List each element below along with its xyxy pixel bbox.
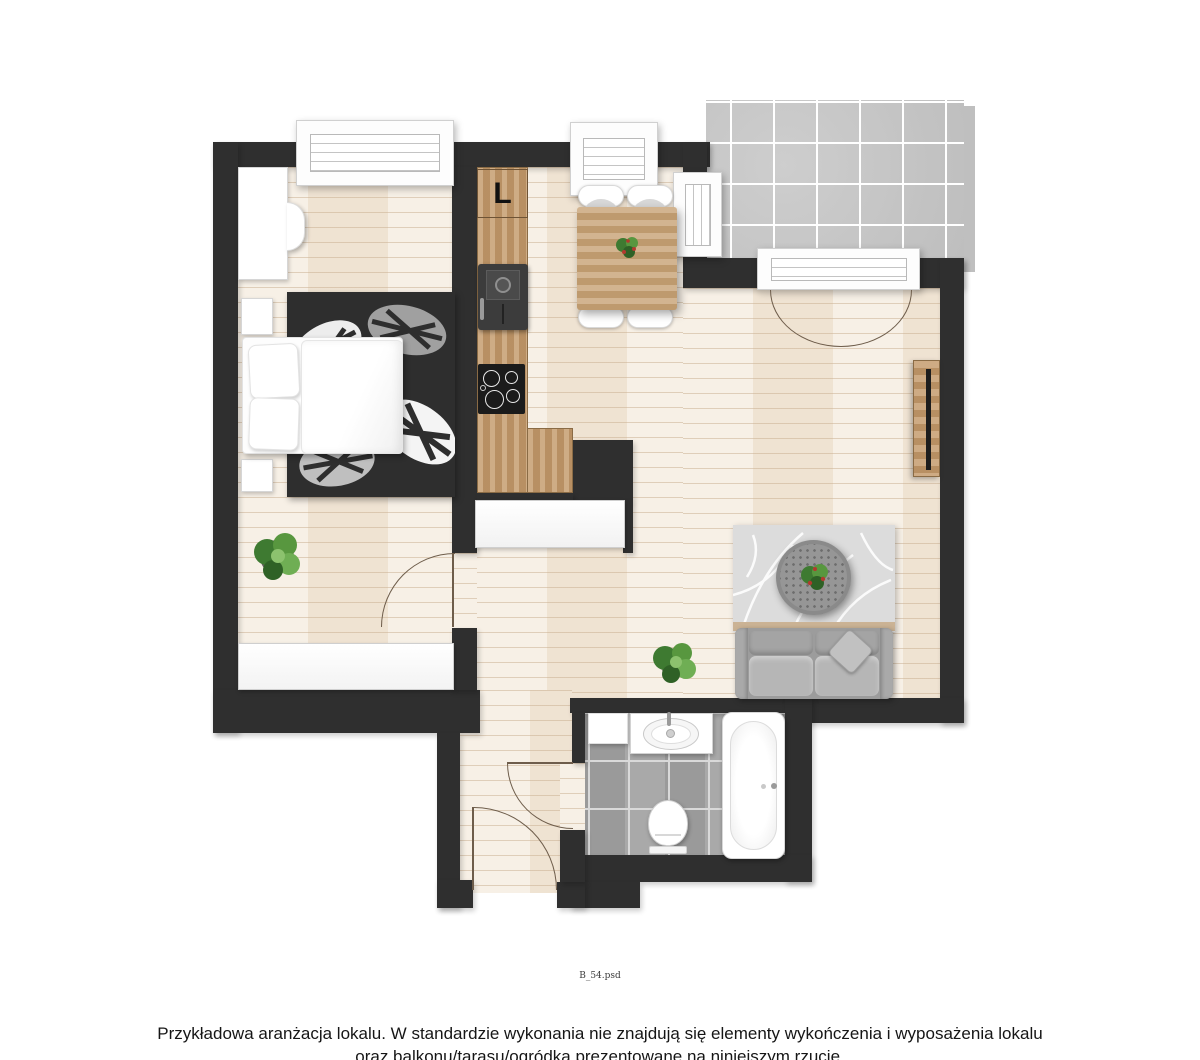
basin-drain (666, 729, 675, 738)
wall (452, 167, 477, 553)
sofa-armrest (735, 628, 748, 699)
disclaimer: Przykładowa aranżacja lokalu. W standard… (0, 1022, 1200, 1060)
dining-table-plant (612, 232, 642, 262)
dining-side-window (673, 172, 722, 257)
bedroom-doorway-floor (452, 553, 477, 628)
window-glass (583, 138, 645, 180)
window-glass (685, 184, 711, 246)
bathtub-basin (730, 721, 777, 850)
plant-icon (796, 559, 832, 595)
wall (572, 713, 585, 763)
floor-plan: L (0, 0, 1200, 1060)
wall (570, 855, 812, 882)
bathtub (722, 712, 785, 859)
file-label: B_54.psd (0, 971, 1200, 981)
burner (505, 371, 518, 384)
disclaimer-line-1: Przykładowa aranżacja lokalu. W standard… (0, 1022, 1200, 1045)
washer (588, 713, 628, 744)
wall (213, 690, 480, 733)
wardrobe (238, 167, 288, 280)
window-glass (310, 134, 440, 172)
balcony-tiles (706, 100, 964, 263)
tub-drain (761, 784, 766, 789)
fridge-label: L (477, 169, 528, 218)
kitchen-counter-ext (528, 428, 573, 493)
wall (940, 258, 964, 723)
bed (242, 337, 403, 454)
bedroom-window (296, 120, 454, 186)
sofa-armrest (880, 628, 893, 699)
wall (557, 882, 585, 908)
sink-faucet (480, 298, 484, 320)
balcony-door (757, 248, 920, 290)
hall-closet (475, 500, 625, 548)
wall (452, 628, 477, 690)
nightstand (241, 459, 273, 492)
pillow (248, 343, 301, 400)
burner (485, 390, 504, 409)
basin-faucet (667, 712, 671, 726)
sofa-side-plant (648, 636, 702, 688)
sofa (735, 628, 893, 699)
nightstand (241, 298, 273, 335)
coffee-table-plant (796, 559, 832, 595)
sofa-seat-cushion (749, 656, 813, 696)
cooktop (478, 364, 525, 414)
balcony-shadow (964, 106, 975, 272)
wall (573, 440, 633, 501)
sink-divider (502, 304, 504, 324)
bedroom-closet (238, 643, 454, 690)
wall (570, 698, 785, 713)
burner (506, 389, 520, 403)
plant-icon (612, 232, 642, 262)
disclaimer-line-2: oraz balkonu/tarasu/ogródka prezentowane… (0, 1045, 1200, 1060)
toilet (646, 800, 690, 854)
window-glass (771, 258, 907, 281)
duvet (301, 340, 403, 454)
sink-drain (495, 277, 511, 293)
wall (560, 830, 585, 882)
tv-sideboard (913, 360, 940, 477)
pillow (248, 397, 300, 451)
toilet-bowl (648, 800, 688, 846)
plant-icon (648, 636, 702, 688)
burner-knob (480, 385, 486, 391)
plant-icon (248, 524, 306, 586)
toilet-tank (649, 846, 687, 854)
wall (437, 880, 473, 908)
bedroom-plant (248, 524, 306, 586)
kitchen-sink (478, 264, 528, 330)
toilet-seat-line (655, 834, 681, 836)
burner (483, 370, 500, 387)
tub-faucet (771, 783, 777, 789)
tv (926, 369, 931, 470)
washbasin-vanity (630, 713, 713, 754)
wall (213, 142, 238, 733)
sofa-back-cushion (749, 631, 813, 655)
wall (683, 258, 759, 288)
